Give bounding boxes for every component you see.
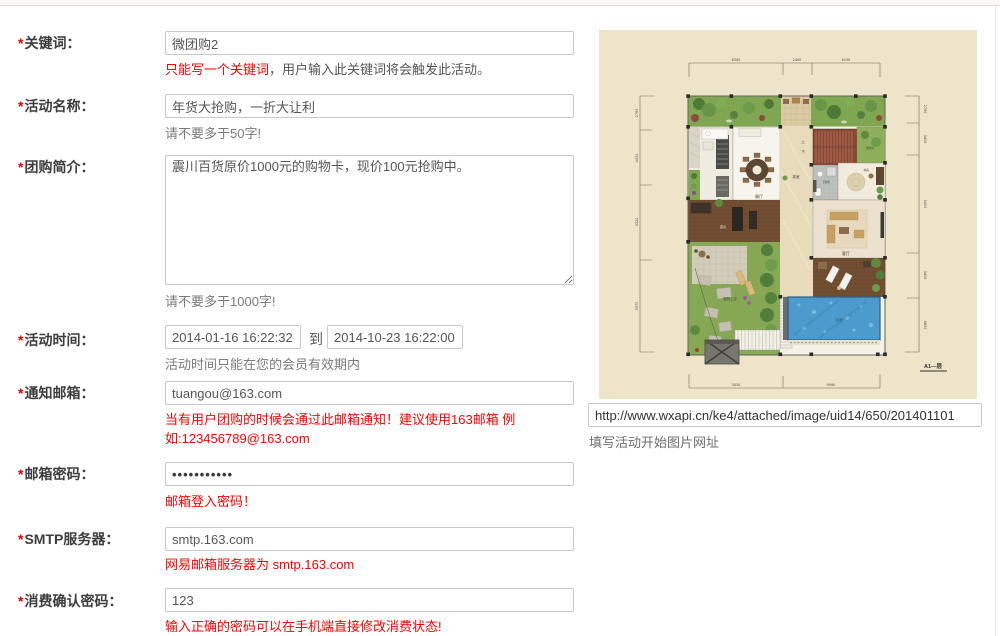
living-room: 客厅 <box>813 200 885 258</box>
activity-name-label: *活动名称： <box>18 96 94 116</box>
svg-text:3400: 3400 <box>923 271 927 280</box>
keyword-hint: 只能写一个关键词，用户输入此关键词将会触发此活动。 <box>165 60 490 79</box>
svg-text:上: 上 <box>801 139 805 144</box>
bathroom: 卫生间 <box>813 165 838 200</box>
svg-text:3030: 3030 <box>732 383 741 387</box>
svg-text:茶室: 茶室 <box>792 174 800 179</box>
svg-text:4600: 4600 <box>923 321 927 330</box>
image-url-input[interactable] <box>588 403 982 427</box>
svg-text:泳池: 泳池 <box>836 317 843 322</box>
required-mark: * <box>18 385 23 401</box>
required-mark: * <box>18 593 23 609</box>
smtp-label: *SMTP服务器： <box>18 529 119 549</box>
svg-text:3320: 3320 <box>635 218 639 227</box>
activity-time-label: *活动时间： <box>18 330 94 350</box>
pool-deck <box>813 258 885 297</box>
top-bar <box>0 0 1000 6</box>
svg-text:客厅: 客厅 <box>842 250 850 256</box>
svg-text:餐厅: 餐厅 <box>755 193 763 199</box>
svg-text:楼梯间: 楼梯间 <box>866 146 874 150</box>
image-url-caption: 填写活动开始图片网址 <box>589 432 719 451</box>
svg-text:A1—层: A1—层 <box>924 362 943 370</box>
svg-text:庭院上空: 庭院上空 <box>723 296 737 301</box>
stairwell-garden: 楼梯间 <box>857 127 885 163</box>
intro-label: *团购简介： <box>18 157 94 177</box>
time-separator: 到 <box>309 329 323 349</box>
svg-text:3400: 3400 <box>923 135 927 144</box>
svg-text:露台: 露台 <box>720 224 726 229</box>
floor-plan-image: 8240 2400 6100 3030 9590 2790 4000 3320 … <box>599 30 977 399</box>
keyword-label: *关键词： <box>18 33 80 53</box>
activity-time-hint: 活动时间只能在您的会员有效期内 <box>165 354 360 373</box>
study-room: 书房 <box>838 163 885 200</box>
required-mark: * <box>18 332 23 348</box>
intro-textarea[interactable]: 震川百货原价1000元的购物卡，现价100元抢购中。 <box>165 155 574 285</box>
svg-text:书房: 书房 <box>863 167 869 172</box>
staircase <box>813 129 857 165</box>
smtp-hint: 网易邮箱服务器为 smtp.163.com <box>165 555 354 574</box>
svg-text:2790: 2790 <box>635 109 639 118</box>
activity-image-preview: 8240 2400 6100 3030 9590 2790 4000 3320 … <box>599 30 977 399</box>
notify-email-hint: 当有用户团购的时候会通过此邮箱通知！建议使用163邮箱 例如:123456789… <box>165 410 579 448</box>
end-time-input[interactable] <box>327 325 463 349</box>
entry-porch <box>705 340 739 364</box>
svg-text:5400: 5400 <box>923 200 927 209</box>
svg-text:下: 下 <box>801 150 805 154</box>
hallway: 上 下 茶室 <box>780 127 813 297</box>
kitchen <box>689 127 734 200</box>
intro-hint: 请不要多于1000字! <box>165 291 276 310</box>
page: *关键词： 只能写一个关键词，用户输入此关键词将会触发此活动。 *活动名称： 请… <box>0 0 1000 636</box>
svg-text:9590: 9590 <box>827 383 836 387</box>
required-mark: * <box>18 159 23 175</box>
notify-email-label: *通知邮箱： <box>18 383 94 403</box>
svg-text:8240: 8240 <box>732 58 741 62</box>
required-mark: * <box>18 466 23 482</box>
email-password-label: *邮箱密码： <box>18 464 94 484</box>
keyword-input[interactable] <box>165 31 574 55</box>
svg-text:2400: 2400 <box>793 58 802 62</box>
page-right-border <box>995 6 996 636</box>
start-time-input[interactable] <box>165 325 301 349</box>
top-garden <box>689 97 885 127</box>
svg-text:2790: 2790 <box>923 105 927 114</box>
confirm-password-label: *消费确认密码： <box>18 591 122 611</box>
svg-text:4000: 4000 <box>635 154 639 163</box>
confirm-password-input[interactable] <box>165 588 574 612</box>
confirm-password-hint: 输入正确的密码可以在手机端直接修改消费状态! <box>165 617 442 636</box>
notify-email-input[interactable] <box>165 381 574 405</box>
svg-text:5970: 5970 <box>635 302 639 311</box>
svg-text:卫生间: 卫生间 <box>822 180 830 184</box>
email-password-hint: 邮箱登入密码！ <box>165 492 256 511</box>
swimming-pool: 泳池 <box>783 297 880 345</box>
required-mark: * <box>18 531 23 547</box>
activity-name-hint: 请不要多于50字! <box>165 123 261 142</box>
activity-name-input[interactable] <box>165 94 574 118</box>
required-mark: * <box>18 35 23 51</box>
svg-text:6100: 6100 <box>842 58 851 62</box>
wood-deck: 露台 <box>689 199 781 242</box>
email-password-input[interactable] <box>165 462 574 486</box>
dining-room: 餐厅 <box>733 127 780 200</box>
required-mark: * <box>18 98 23 114</box>
smtp-input[interactable] <box>165 527 574 551</box>
